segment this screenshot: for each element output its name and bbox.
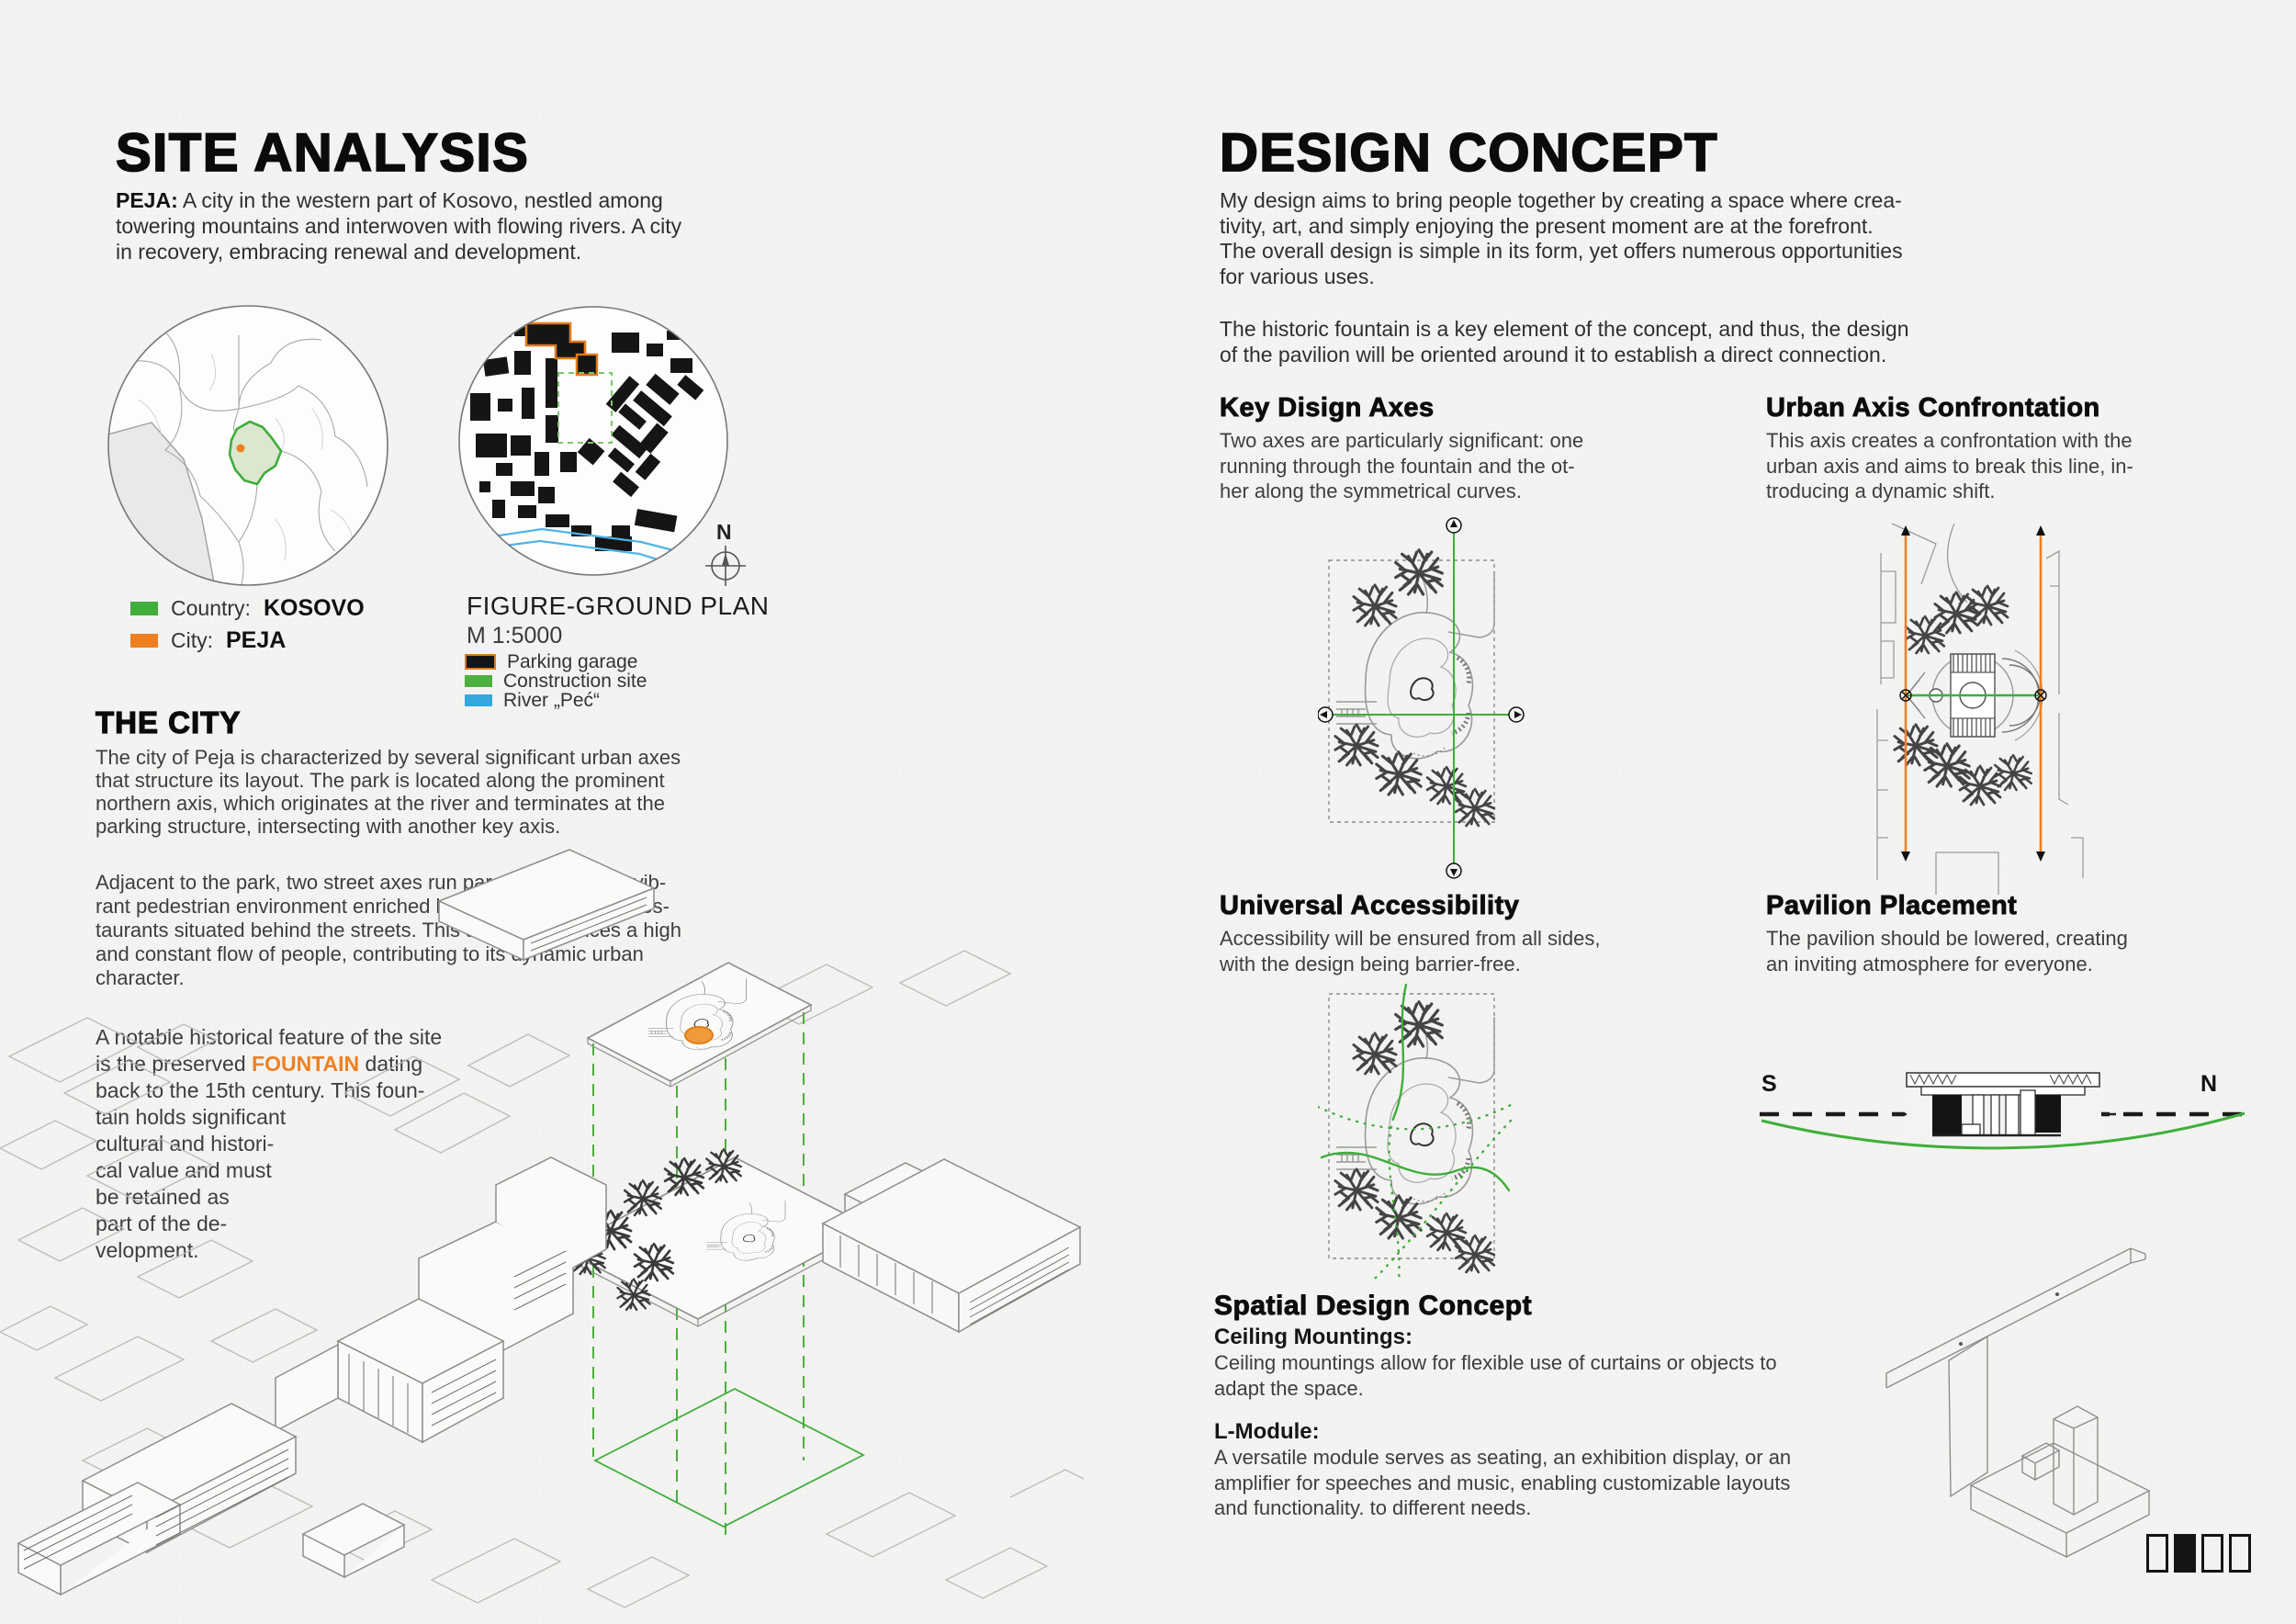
peja-dot-icon (237, 445, 245, 453)
ceiling-mountings-body: Ceiling mountings allow for flexible use… (1214, 1350, 1857, 1401)
construction-swatch-icon (465, 675, 492, 687)
design-intro-2: The historic fountain is a key element o… (1220, 317, 1936, 367)
key-axes-heading: Key Disign Axes (1220, 393, 1435, 423)
country-swatch-icon (130, 602, 158, 615)
country-value: KOSOVO (264, 595, 365, 622)
page-box-4 (2229, 1534, 2251, 1573)
river-label: River „Peć“ (503, 690, 600, 712)
urban-axis-diagram (1864, 514, 2122, 909)
country-label: Country: (171, 596, 251, 621)
compass-north-label: N (716, 520, 732, 545)
key-axes-body: Two axes are particularly significant: o… (1220, 428, 1697, 504)
city-paragraph-1: The city of Peja is characterized by sev… (96, 746, 738, 838)
site-analysis-title: SITE ANALYSIS (116, 127, 529, 180)
design-intro-1: My design aims to bring people together … (1220, 188, 1936, 289)
peja-label: PEJA: (116, 188, 178, 212)
figure-ground-title: FIGURE-GROUND PLAN (467, 592, 769, 621)
compass-icon (702, 544, 749, 592)
axon-building-center (276, 1157, 606, 1442)
fg-legend-parking: Parking garage (465, 652, 647, 671)
exploded-axonometric (0, 946, 1084, 1624)
legend-country: Country: KOSOVO (130, 595, 365, 622)
figure-ground-map (457, 305, 729, 577)
accessibility-diagram (1318, 983, 1538, 1286)
peja-intro-text: A city in the western part of Kosovo, ne… (116, 188, 681, 264)
country-map (101, 299, 395, 592)
axon-top-plate (588, 963, 811, 1087)
fg-legend-river: River „Peć“ (465, 691, 647, 710)
the-city-heading: THE CITY (96, 705, 241, 740)
l-module-label: L-Module: (1214, 1419, 1320, 1445)
module-isometric (1874, 1226, 2259, 1575)
axon-building-slabs (18, 1404, 404, 1595)
accessibility-heading: Universal Accessibility (1220, 891, 1519, 921)
axon-building-right (823, 1159, 1080, 1332)
pavilion-section-diagram (1754, 1047, 2250, 1185)
axon-ground-outline (595, 1389, 863, 1527)
figure-ground-legend: Parking garage Construction site River „… (465, 652, 647, 710)
key-axes-diagram (1318, 514, 1538, 882)
urban-axis-body: This axis creates a confrontation with t… (1766, 428, 2244, 504)
placement-body: The pavilion should be lowered, creating… (1766, 926, 2244, 976)
placement-heading: Pavilion Placement (1766, 891, 2017, 921)
fg-legend-construction: Construction site (465, 671, 647, 691)
page-box-1 (2146, 1534, 2168, 1573)
city-swatch-icon (130, 634, 158, 648)
urban-axis-heading: Urban Axis Confrontation (1766, 393, 2100, 423)
river-swatch-icon (465, 694, 492, 706)
city-value: PEJA (226, 627, 286, 654)
spatial-heading: Spatial Design Concept (1214, 1291, 1532, 1322)
legend-city: City: PEJA (130, 627, 286, 654)
fountain-icon (685, 1027, 713, 1043)
page-box-2 (2174, 1534, 2196, 1573)
parking-swatch-icon (465, 654, 496, 670)
design-concept-title: DESIGN CONCEPT (1220, 127, 1718, 180)
site-analysis-intro: PEJA: A city in the western part of Koso… (116, 187, 777, 265)
ceiling-mountings-label: Ceiling Mountings: (1214, 1325, 1412, 1350)
city-label: City: (171, 628, 213, 653)
figure-ground-scale: M 1:5000 (467, 623, 562, 649)
accessibility-body: Accessibility will be ensured from all s… (1220, 926, 1697, 976)
page-box-3 (2201, 1534, 2223, 1573)
poster-page: SITE ANALYSIS PEJA: A city in the wester… (0, 0, 2296, 1624)
page-indicator (2146, 1534, 2251, 1573)
l-module-body: A versatile module serves as seating, an… (1214, 1445, 1857, 1521)
